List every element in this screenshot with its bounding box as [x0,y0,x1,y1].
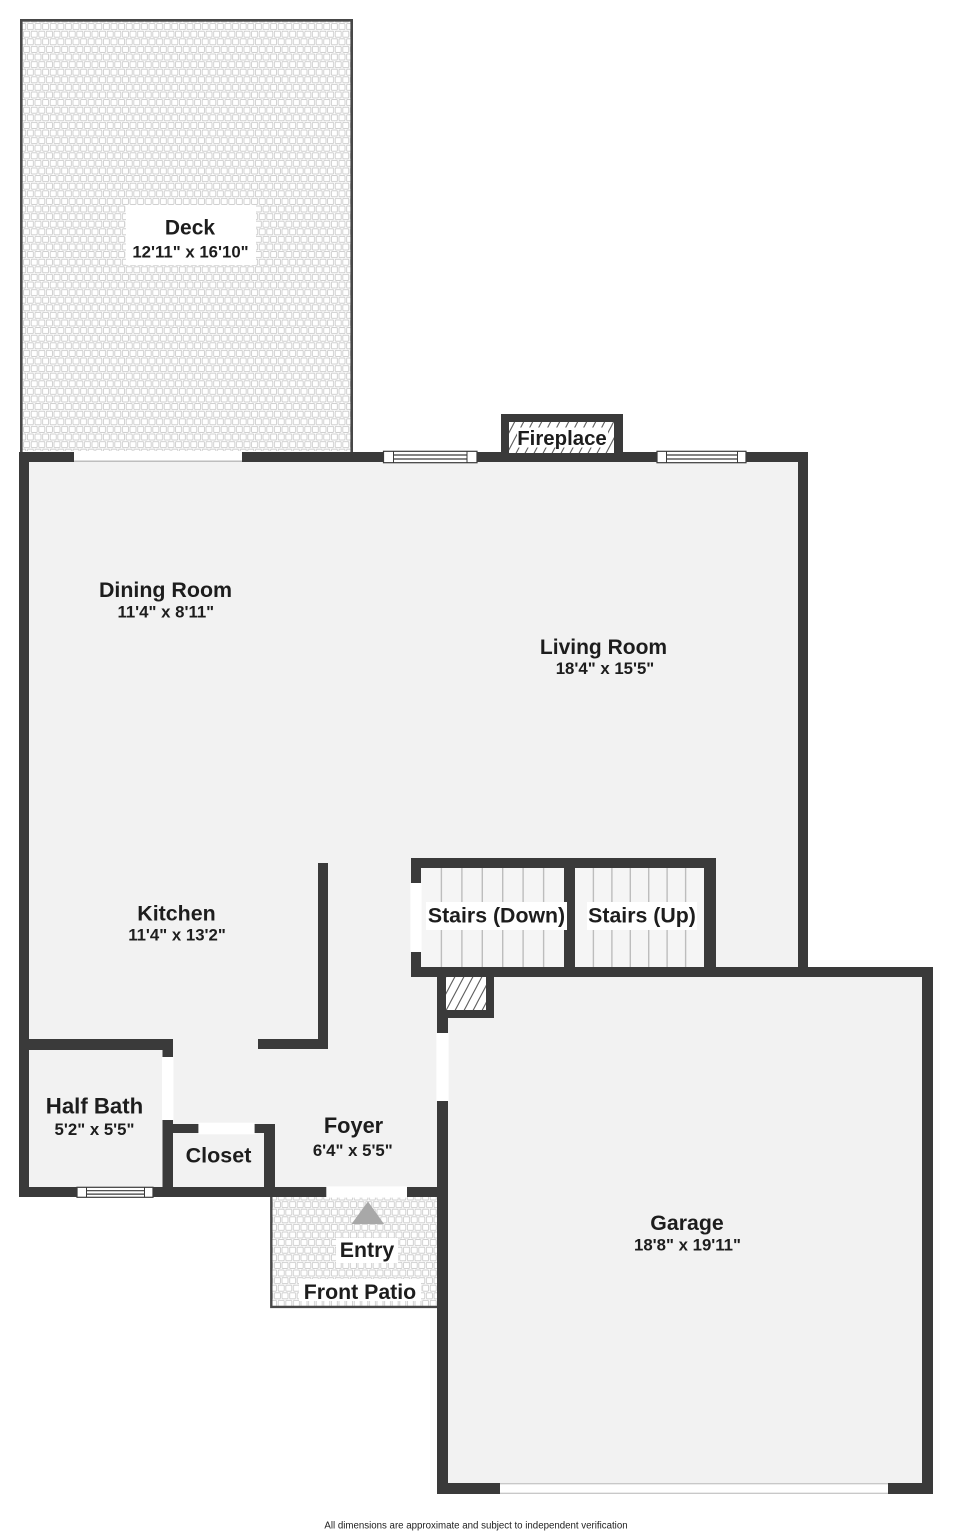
svg-text:Stairs (Up): Stairs (Up) [588,904,696,928]
svg-text:18'8" x 19'11": 18'8" x 19'11" [634,1236,741,1255]
svg-text:Living Room: Living Room [540,636,667,659]
svg-text:Deck: Deck [165,217,216,240]
svg-text:Entry: Entry [340,1238,395,1262]
svg-text:18'4" x 15'5": 18'4" x 15'5" [556,659,655,678]
svg-text:Garage: Garage [650,1211,724,1235]
svg-text:6'4" x 5'5": 6'4" x 5'5" [313,1141,393,1160]
svg-text:Foyer: Foyer [324,1113,384,1138]
svg-text:5'2" x 5'5": 5'2" x 5'5" [55,1120,135,1139]
svg-text:Fireplace: Fireplace [517,428,607,450]
svg-text:Half Bath: Half Bath [46,1094,143,1119]
svg-text:Stairs (Down): Stairs (Down) [428,904,565,928]
svg-text:All dimensions are approximate: All dimensions are approximate and subje… [324,1521,627,1532]
svg-text:Front Patio: Front Patio [304,1280,416,1304]
svg-text:11'4" x 8'11": 11'4" x 8'11" [117,603,214,622]
svg-text:Closet: Closet [186,1144,252,1168]
svg-text:Dining Room: Dining Room [99,578,232,602]
svg-text:11'4" x 13'2": 11'4" x 13'2" [128,926,226,945]
svg-text:Kitchen: Kitchen [137,902,215,926]
svg-text:12'11" x 16'10": 12'11" x 16'10" [132,243,248,262]
